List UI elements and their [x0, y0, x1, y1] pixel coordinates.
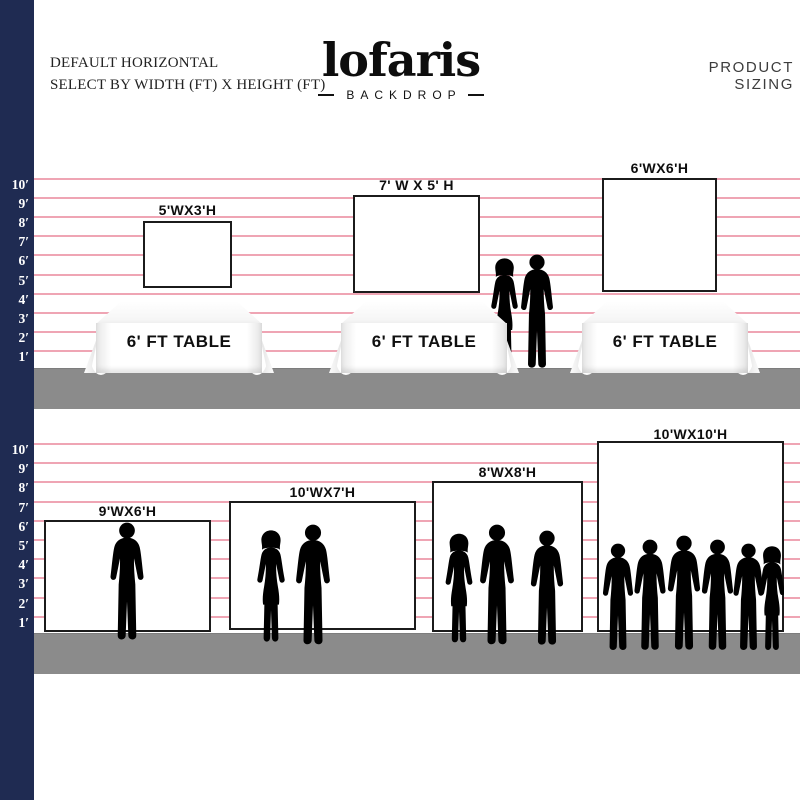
brand-logo-tagline: BACKDROP [318, 88, 484, 102]
backdrop-size-label: 8'WX8'H [452, 464, 563, 480]
ruler-label: 10′ [0, 177, 29, 193]
ruler-label: 8′ [0, 480, 29, 496]
ruler-label: 1′ [0, 349, 29, 365]
heading-line-1: DEFAULT HORIZONTAL [50, 53, 325, 75]
tabletop [582, 301, 748, 324]
couple-silhouette [250, 521, 360, 650]
backdrop-size-label: 10'WX7'H [267, 484, 378, 500]
tagline-text: BACKDROP [340, 88, 461, 102]
backdrop-6x6 [602, 178, 717, 292]
ruler-label: 10′ [0, 442, 29, 458]
tagline-dash-left [318, 94, 334, 96]
backdrop-size-label: 10'WX10'H [635, 426, 746, 442]
single-person-silhouette [101, 522, 153, 645]
tabletop [341, 301, 507, 324]
product-sizing-title: PRODUCT SIZING [664, 59, 794, 93]
group-of-three-silhouette [441, 519, 571, 650]
ruler-label: 7′ [0, 234, 29, 250]
brand-logo-wordmark: lofaris [318, 34, 484, 86]
ruler-label: 1′ [0, 615, 29, 631]
table-label: 6' FT TABLE [341, 332, 507, 352]
tabletop [96, 301, 262, 324]
backdrop-size-label: 9'WX6'H [72, 503, 183, 519]
tagline-dash-right [468, 94, 484, 96]
ruler-label: 3′ [0, 576, 29, 592]
heading-line-2: SELECT BY WIDTH (FT) X HEIGHT (FT) [50, 75, 325, 97]
backdrop-size-label: 5'WX3'H [132, 202, 243, 218]
ruler-label: 4′ [0, 557, 29, 573]
backdrop-5x3 [143, 221, 232, 288]
ruler-label: 9′ [0, 461, 29, 477]
ruler-label: 5′ [0, 538, 29, 554]
table-label: 6' FT TABLE [582, 332, 748, 352]
table-6ft: 6' FT TABLE [341, 301, 507, 373]
ruler-bar [0, 0, 34, 800]
ruler-label: 5′ [0, 273, 29, 289]
floor-top-section [34, 368, 800, 409]
ruler-label: 2′ [0, 596, 29, 612]
backdrop-size-label: 7' W X 5' H [361, 177, 472, 193]
ruler-label: 6′ [0, 519, 29, 535]
brand-logo: lofaris BACKDROP [318, 34, 484, 102]
ruler-label: 6′ [0, 253, 29, 269]
group-of-six-silhouette [598, 533, 784, 655]
ruler-label: 8′ [0, 215, 29, 231]
table-6ft: 6' FT TABLE [582, 301, 748, 373]
product-sizing-chart: DEFAULT HORIZONTAL SELECT BY WIDTH (FT) … [0, 0, 800, 800]
table-6ft: 6' FT TABLE [96, 301, 262, 373]
foot-line-4ft-top [34, 293, 800, 295]
ruler-label: 2′ [0, 330, 29, 346]
ruler-label: 4′ [0, 292, 29, 308]
ruler-label: 3′ [0, 311, 29, 327]
table-label: 6' FT TABLE [96, 332, 262, 352]
backdrop-size-label: 6'WX6'H [604, 160, 715, 176]
ruler-label: 9′ [0, 196, 29, 212]
ruler-label: 7′ [0, 500, 29, 516]
page-heading: DEFAULT HORIZONTAL SELECT BY WIDTH (FT) … [50, 53, 325, 97]
backdrop-7x5 [353, 195, 480, 293]
